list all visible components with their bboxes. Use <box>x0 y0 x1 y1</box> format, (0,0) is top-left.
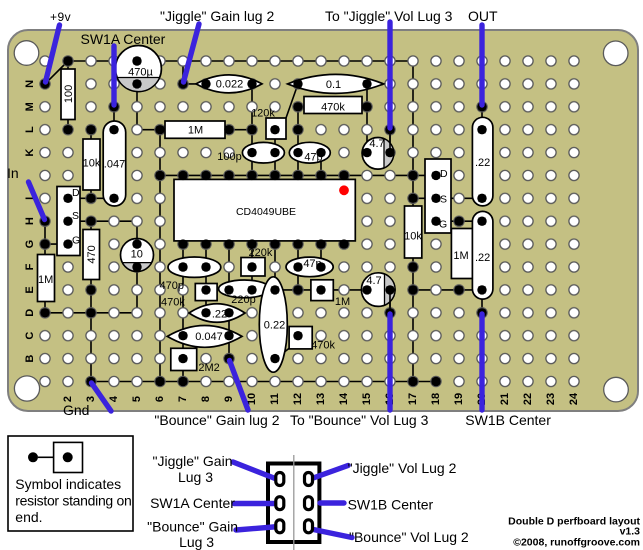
svg-text:24: 24 <box>568 392 580 405</box>
svg-text:K: K <box>24 149 36 157</box>
svg-text:E: E <box>24 286 36 293</box>
svg-text:1M: 1M <box>335 296 350 308</box>
svg-text:4: 4 <box>108 395 120 402</box>
svg-text:To "Bounce" Vol Lug 3: To "Bounce" Vol Lug 3 <box>290 412 429 428</box>
svg-text:2M2: 2M2 <box>198 362 219 374</box>
svg-text:Lug 3: Lug 3 <box>179 534 214 550</box>
svg-text:470µ: 470µ <box>128 67 153 79</box>
svg-text:18: 18 <box>430 393 442 405</box>
svg-text:4.7: 4.7 <box>366 275 381 287</box>
svg-text:0.047: 0.047 <box>195 331 223 343</box>
svg-text:G: G <box>72 235 80 247</box>
svg-text:N: N <box>24 80 36 88</box>
svg-text:15: 15 <box>361 393 373 405</box>
svg-text:"Jiggle" Gain lug 2: "Jiggle" Gain lug 2 <box>160 8 274 24</box>
svg-text:470p: 470p <box>160 280 184 292</box>
svg-text:In: In <box>7 165 19 181</box>
svg-text:.047: .047 <box>104 159 125 171</box>
svg-text:120k: 120k <box>251 108 275 120</box>
svg-text:S: S <box>72 210 79 222</box>
svg-text:"Jiggle" Gain: "Jiggle" Gain <box>153 453 233 469</box>
svg-text:"Bounce" Gain lug 2: "Bounce" Gain lug 2 <box>154 412 279 428</box>
svg-text:7: 7 <box>177 396 189 402</box>
svg-text:+9v: +9v <box>50 10 71 24</box>
svg-text:100: 100 <box>63 85 75 103</box>
svg-text:L: L <box>24 126 36 133</box>
svg-text:4.7: 4.7 <box>369 138 384 150</box>
svg-text:"Bounce" Vol Lug 2: "Bounce" Vol Lug 2 <box>349 529 469 545</box>
svg-text:"Jiggle" Vol Lug 2: "Jiggle" Vol Lug 2 <box>348 460 457 476</box>
svg-text:220k: 220k <box>249 247 273 259</box>
svg-text:1M: 1M <box>38 274 53 286</box>
svg-text:C: C <box>24 332 36 340</box>
svg-text:To "Jiggle" Vol Lug 3: To "Jiggle" Vol Lug 3 <box>325 8 453 24</box>
svg-text:17: 17 <box>407 393 419 405</box>
svg-text:SW1B Center: SW1B Center <box>465 412 551 428</box>
svg-text:220p: 220p <box>231 294 255 306</box>
svg-text:470k: 470k <box>321 102 345 114</box>
svg-text:H: H <box>24 217 36 225</box>
svg-text:0.22: 0.22 <box>264 319 285 331</box>
svg-text:.22: .22 <box>475 157 490 169</box>
svg-text:D: D <box>440 168 448 180</box>
svg-text:CD4049UBE: CD4049UBE <box>236 206 296 218</box>
svg-text:Lug 3: Lug 3 <box>178 469 213 485</box>
svg-text:12: 12 <box>292 393 304 405</box>
svg-text:©2008, runoffgroove.com: ©2008, runoffgroove.com <box>513 537 640 549</box>
svg-text:1M: 1M <box>453 250 468 262</box>
svg-text:resistor standing on: resistor standing on <box>15 493 131 509</box>
svg-text:10: 10 <box>131 249 143 261</box>
svg-text:14: 14 <box>338 392 350 405</box>
svg-text:SW1B Center: SW1B Center <box>348 497 434 513</box>
svg-text:G: G <box>24 240 36 249</box>
svg-text:SW1A Center: SW1A Center <box>81 31 166 47</box>
svg-text:19: 19 <box>453 393 465 405</box>
svg-text:13: 13 <box>315 393 327 405</box>
svg-text:470k: 470k <box>161 297 185 309</box>
svg-text:21: 21 <box>499 393 511 405</box>
svg-text:"Bounce" Gain: "Bounce" Gain <box>147 519 238 535</box>
svg-text:5: 5 <box>131 396 143 402</box>
svg-text:22: 22 <box>522 393 534 405</box>
svg-text:8: 8 <box>200 396 212 402</box>
svg-text:11: 11 <box>269 393 281 405</box>
svg-text:9: 9 <box>223 396 235 402</box>
svg-text:1M: 1M <box>188 125 203 137</box>
svg-text:6: 6 <box>154 396 166 402</box>
svg-text:SW1A Center: SW1A Center <box>150 495 235 511</box>
svg-text:D: D <box>24 309 36 317</box>
svg-text:S: S <box>440 194 447 206</box>
svg-text:OUT: OUT <box>468 8 498 24</box>
svg-text:end.: end. <box>15 509 42 525</box>
svg-text:B: B <box>24 355 36 363</box>
svg-text:0.1: 0.1 <box>326 79 341 91</box>
svg-text:10k: 10k <box>404 231 422 243</box>
svg-text:100p: 100p <box>217 151 241 163</box>
svg-text:Symbol indicates: Symbol indicates <box>15 476 121 492</box>
svg-text:10k: 10k <box>83 158 101 170</box>
svg-text:470: 470 <box>86 245 98 263</box>
svg-text:0.022: 0.022 <box>216 79 244 91</box>
svg-text:Gnd: Gnd <box>63 402 89 418</box>
svg-text:23: 23 <box>545 393 557 405</box>
svg-text:D: D <box>72 187 80 199</box>
svg-text:M: M <box>24 102 36 111</box>
svg-text:F: F <box>24 263 36 270</box>
svg-text:.22: .22 <box>475 252 490 264</box>
svg-text:470k: 470k <box>311 339 335 351</box>
